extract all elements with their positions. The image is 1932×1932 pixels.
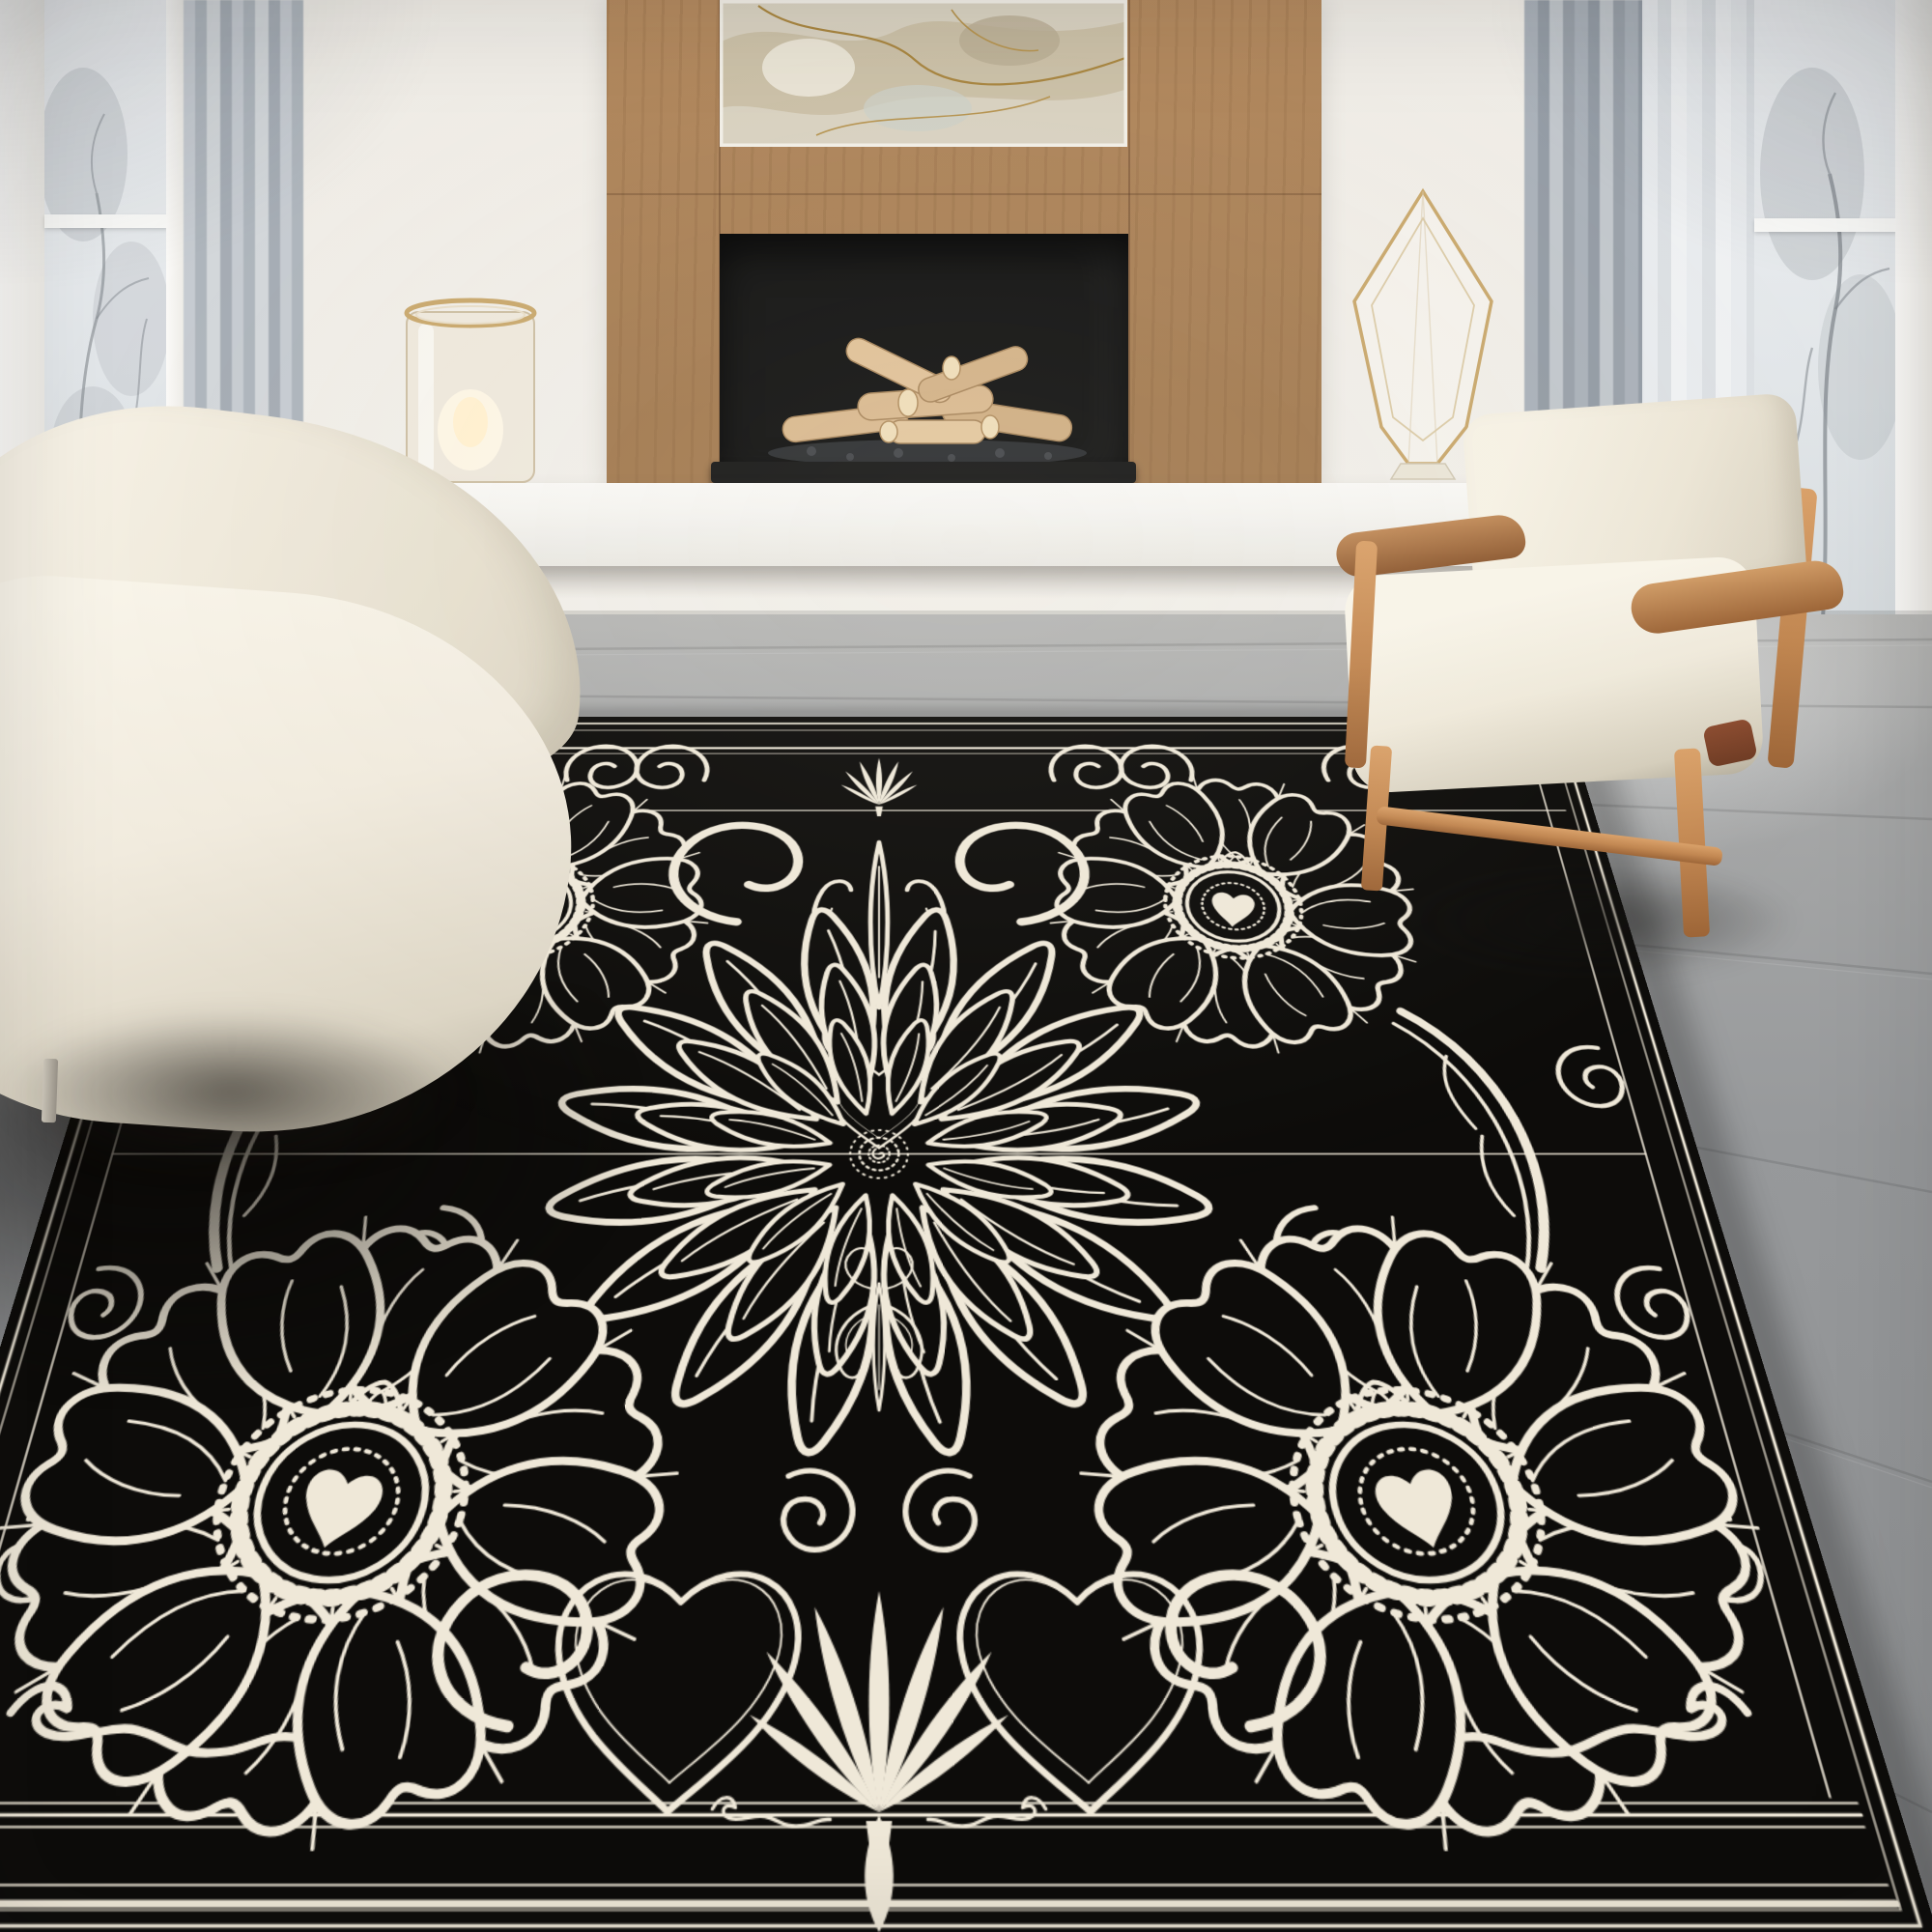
sofa-base-shadow [0,985,541,1198]
window-right-sash [1754,218,1897,232]
firebox-tray [711,462,1136,483]
firebox [720,234,1128,466]
window-left-sash [44,214,168,228]
fireplace [607,0,1321,488]
sofa [0,251,618,1159]
armchair-side-rail [1376,806,1723,867]
wood-panel-seam [607,193,1321,195]
wood-panel-seam [1128,0,1130,488]
firewood-logs [753,335,1101,466]
sofa-leg [42,1059,58,1122]
armchair [1314,367,1855,947]
window-right-frame [1895,0,1932,639]
living-room-scene [0,0,1932,1932]
abstract-artwork [720,0,1127,147]
